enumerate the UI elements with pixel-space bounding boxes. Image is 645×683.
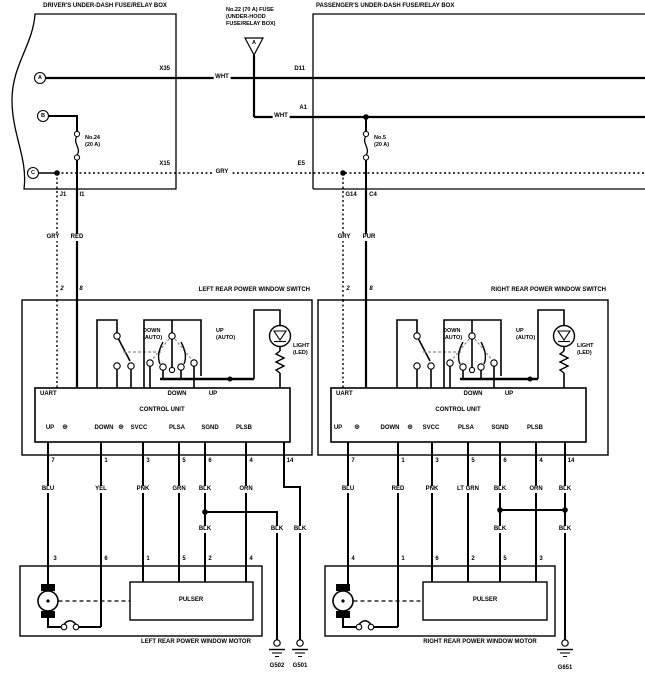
left-wire-color: BLK	[197, 486, 212, 493]
right-wire-color: PNK	[424, 486, 440, 493]
left-motor-title: LEFT REAR POWER WINDOW MOTOR	[141, 639, 251, 646]
right-term-up: UP	[334, 425, 342, 432]
right-wire-color: RED	[390, 486, 406, 493]
connector-c4: C4	[369, 192, 377, 199]
left-motor-pin: 2	[208, 556, 211, 563]
left-out-pin: 5	[182, 458, 185, 465]
left-term-plsa: PLSA	[169, 425, 185, 432]
left-wire-color: GRN	[171, 486, 187, 493]
connector-x15: X15	[159, 161, 170, 168]
plus-terminal-icon: ⊕	[118, 424, 124, 431]
right-pulser-label: PULSER	[473, 597, 497, 604]
left-switch-pin-2: 2	[60, 286, 63, 293]
connector-e5: E5	[298, 161, 305, 168]
right-motor-pin: 6	[435, 556, 438, 563]
ground-label-g501: G501	[293, 663, 308, 670]
fuse5-name: No.5	[374, 135, 386, 142]
left-switch-outline	[22, 300, 312, 455]
right-out-pin: 4	[539, 458, 542, 465]
left-out-pin: 4	[249, 458, 252, 465]
left-wire-color: BLU	[40, 486, 55, 493]
wiring-diagram: DRIVER'S UNDER-DASH FUSE/RELAY BOX PASSE…	[0, 0, 645, 683]
connector-d11: D11	[294, 66, 305, 73]
right-motor-title: RIGHT REAR POWER WINDOW MOTOR	[423, 639, 537, 646]
fuse24-rating: (20 A)	[85, 142, 100, 149]
right-term-sgnd: SGND	[491, 425, 508, 432]
right-term-down: DOWN	[381, 425, 400, 432]
wire-wht-2: WHT	[273, 113, 290, 120]
left-light-2: (LED)	[293, 350, 308, 357]
left-up-auto-2: (AUTO)	[216, 335, 235, 342]
left-up-auto-1: UP	[216, 328, 224, 335]
left-motor-pin: 6	[104, 556, 107, 563]
connector-i1: I1	[79, 192, 84, 199]
left-wire-color: YEL	[94, 486, 109, 493]
terminal-c-label: C	[31, 170, 35, 177]
underhood-fuse-label-3: FUSE/RELAY BOX)	[226, 21, 276, 28]
right-term-plsb: PLSB	[527, 425, 543, 432]
connector-x35: X35	[159, 66, 170, 73]
left-motor-pin: 3	[53, 556, 56, 563]
left-switch-title: LEFT REAR POWER WINDOW SWITCH	[199, 287, 310, 294]
right-motor-pin: 2	[471, 556, 474, 563]
right-up-label: UP	[505, 391, 513, 398]
plus-terminal-icon: ⊕	[354, 424, 360, 431]
right-switch-pin-2: 2	[346, 286, 349, 293]
fuse5-branch	[363, 120, 368, 301]
right-feed-color-pur: PUR	[361, 234, 377, 241]
left-term-plsb: PLSB	[236, 425, 252, 432]
left-switch-internals	[57, 300, 291, 388]
right-down-auto-2: (AUTO)	[443, 335, 462, 342]
right-output-wires	[348, 442, 568, 640]
connector-a1: A1	[299, 105, 307, 112]
left-feed-color-gry: GRY	[45, 234, 61, 241]
left-gnd-color: BLK	[269, 526, 284, 533]
plus-terminal-icon: ⊕	[407, 424, 413, 431]
left-out-pin: 7	[51, 458, 54, 465]
left-term-down: DOWN	[95, 425, 114, 432]
right-light-2: (LED)	[577, 350, 592, 357]
right-wire-color: ORN	[528, 486, 544, 493]
left-uart-label: UART	[40, 391, 57, 398]
left-down-auto-1: DOWN	[143, 328, 160, 335]
left-up-label: UP	[209, 391, 217, 398]
left-gnd-color: BLK	[197, 526, 212, 533]
connector-g14: G14	[345, 192, 356, 199]
right-down-label: DOWN	[464, 391, 483, 398]
right-motor-pin: 4	[351, 556, 354, 563]
left-out-pin: 3	[146, 458, 149, 465]
fuse24-branch	[49, 116, 80, 300]
right-wire-color: BLU	[340, 486, 355, 493]
left-control-unit-label: CONTROL UNIT	[139, 407, 184, 414]
right-out-pin: 14	[568, 458, 575, 465]
fuse5-rating: (20 A)	[374, 142, 389, 149]
terminal-b-label: B	[41, 113, 45, 120]
plus-terminal-icon: ⊕	[62, 424, 68, 431]
right-light-1: LIGHT	[577, 343, 594, 350]
right-switch-pin-8: 8	[369, 286, 372, 293]
driver-fuse-box-outline	[12, 14, 176, 189]
wire-wht-1: WHT	[214, 74, 231, 81]
connector-j1: J1	[60, 192, 67, 199]
right-down-auto-1: DOWN	[443, 328, 460, 335]
ground-label-g502: G502	[270, 663, 285, 670]
right-out-pin: 7	[351, 458, 354, 465]
left-out-pin: 14	[287, 458, 294, 465]
ground-label-g651: G651	[558, 665, 573, 672]
right-up-auto-2: (AUTO)	[516, 335, 535, 342]
terminal-circles	[28, 73, 49, 179]
left-motor	[20, 566, 262, 636]
left-pulser-label: PULSER	[179, 597, 203, 604]
right-wire-color: BLK	[557, 486, 572, 493]
underhood-fuse-triangle-letter: A	[252, 40, 256, 47]
left-motor-pin: 5	[182, 556, 185, 563]
right-gnd-color: BLK	[557, 526, 572, 533]
right-motor	[325, 566, 555, 636]
left-term-up: UP	[46, 425, 54, 432]
left-down-label: DOWN	[168, 391, 187, 398]
left-control-unit-outline	[35, 388, 290, 442]
right-out-pin: 5	[471, 458, 474, 465]
left-wire-color: PNK	[135, 486, 151, 493]
passenger-fuse-box-outline	[313, 14, 645, 189]
left-term-svcc: SVCC	[131, 425, 148, 432]
right-feed-color-gry: GRY	[336, 234, 352, 241]
fuse24-name: No.24	[85, 135, 100, 142]
right-term-plsa: PLSA	[458, 425, 474, 432]
right-wire-color: LT GRN	[456, 486, 481, 493]
left-wire-color: ORN	[238, 486, 254, 493]
right-motor-pin: 1	[401, 556, 404, 563]
left-term-sgnd: SGND	[201, 425, 218, 432]
left-light-1: LIGHT	[293, 343, 310, 350]
right-out-pin: 6	[503, 458, 506, 465]
left-motor-pin: 4	[249, 556, 252, 563]
right-motor-pin: 3	[539, 556, 542, 563]
passenger-box-title: PASSENGER'S UNDER-DASH FUSE/RELAY BOX	[316, 3, 454, 10]
right-out-pin: 3	[435, 458, 438, 465]
right-motor-pin: 5	[503, 556, 506, 563]
right-gnd-color: BLK	[492, 526, 507, 533]
right-switch-internals	[343, 300, 575, 388]
left-down-auto-2: (AUTO)	[143, 335, 162, 342]
right-out-pin: 1	[401, 458, 404, 465]
right-switch-title: RIGHT REAR POWER WINDOW SWITCH	[491, 287, 606, 294]
terminal-a-label: A	[38, 75, 42, 82]
left-gnd-color: BLK	[292, 526, 307, 533]
right-term-svcc: SVCC	[423, 425, 440, 432]
underhood-fuse-label-1: No.22 (70 A) FUSE	[226, 7, 274, 14]
left-out-pin: 1	[104, 458, 107, 465]
wiring-linework	[0, 0, 645, 683]
driver-box-title: DRIVER'S UNDER-DASH FUSE/RELAY BOX	[43, 3, 167, 10]
right-control-unit-label: CONTROL UNIT	[435, 407, 480, 414]
right-up-auto-1: UP	[516, 328, 524, 335]
left-switch-pin-8: 8	[79, 286, 82, 293]
underhood-fuse-label-2: (UNDER-HOOD	[226, 14, 266, 21]
right-control-unit-outline	[331, 388, 586, 442]
left-out-pin: 6	[208, 458, 211, 465]
left-feed-color-red: RED	[69, 234, 85, 241]
right-wire-color: BLK	[492, 486, 507, 493]
right-uart-label: UART	[336, 391, 353, 398]
wire-gry-top: GRY	[214, 169, 230, 176]
left-motor-pin: 1	[146, 556, 149, 563]
